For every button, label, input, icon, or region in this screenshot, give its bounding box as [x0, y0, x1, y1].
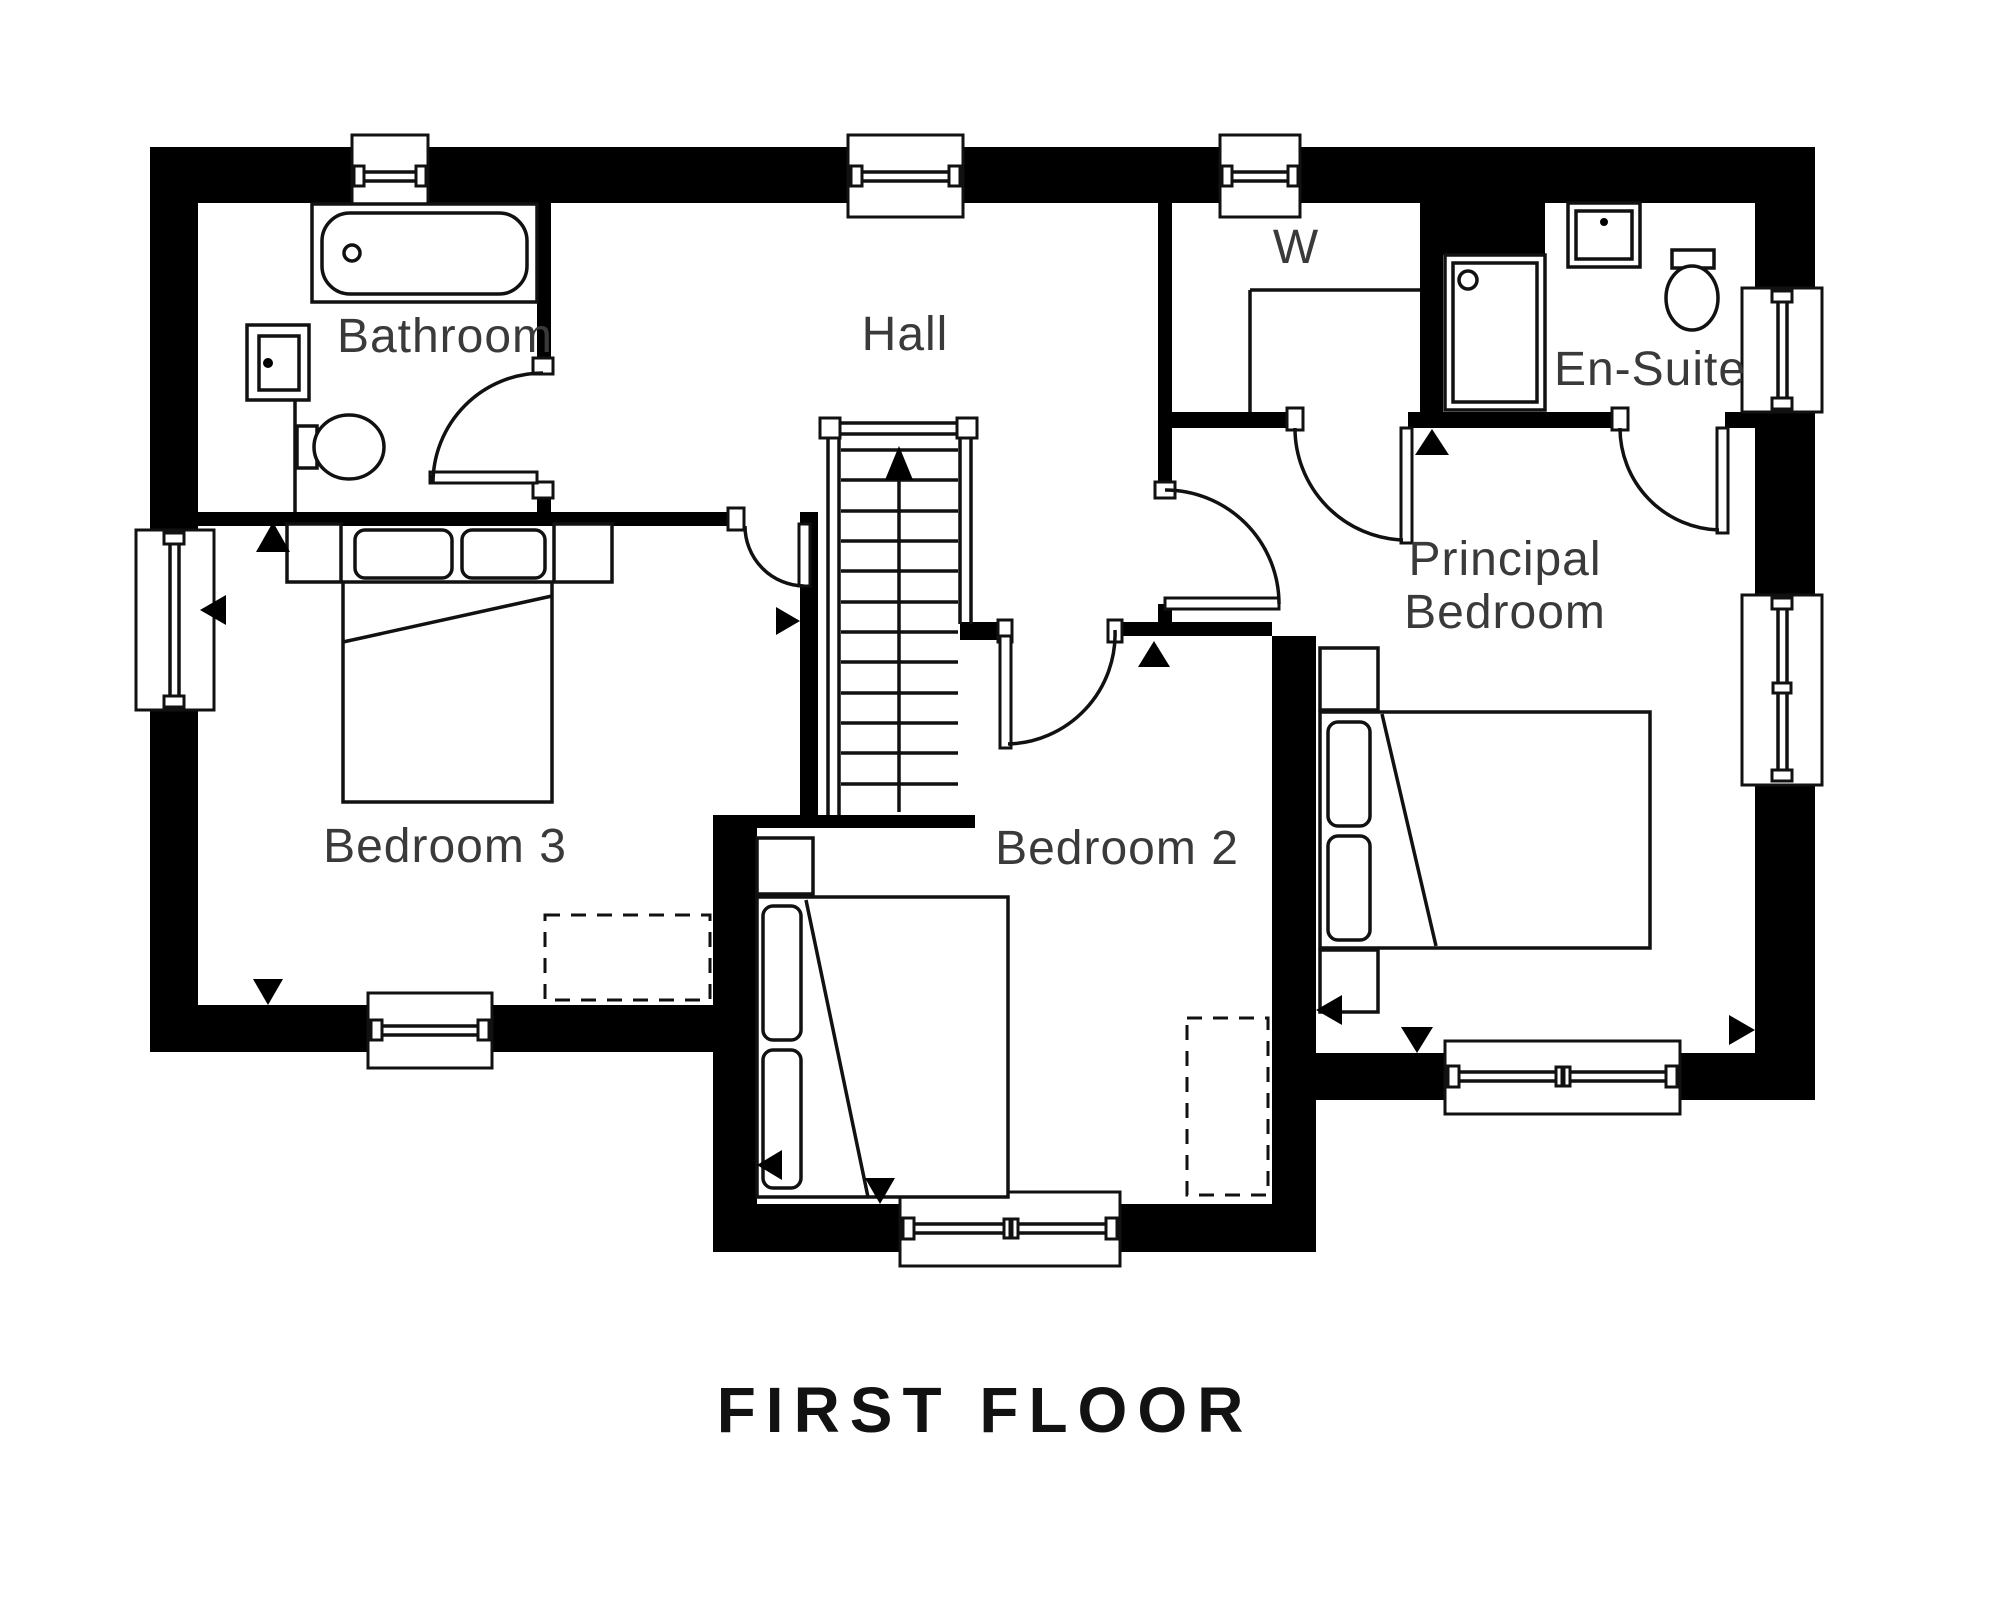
bedroom3-door — [728, 508, 810, 586]
bedroom2-furniture — [757, 838, 1268, 1197]
page-title: FIRST FLOOR — [717, 1374, 1254, 1446]
door-swing-arc — [433, 373, 543, 483]
bedroom2-door — [998, 620, 1122, 748]
principal-furniture — [1320, 648, 1650, 1012]
pillow — [763, 906, 801, 1040]
label-hall: Hall — [862, 308, 949, 361]
pillow — [462, 530, 545, 578]
wall-bathroom-bottom — [198, 512, 742, 526]
window-wardrobe-top — [1220, 135, 1300, 217]
label-bathroom: Bathroom — [337, 310, 553, 363]
floor-plan-svg: Bathroom Hall W En-Suite Principal Bedro… — [0, 0, 2000, 1600]
door-swing-arc — [1008, 630, 1115, 744]
door-leaf — [1717, 428, 1728, 533]
wall-wardrobe-principal — [1172, 412, 1295, 428]
chimney-block — [1420, 203, 1545, 255]
principal-door — [1155, 482, 1279, 609]
stair-newel-right — [957, 418, 977, 438]
bedside-table — [1320, 648, 1378, 710]
basin-tap-dot — [263, 358, 273, 368]
bathroom-door — [430, 358, 553, 498]
shower-tray-icon — [1445, 255, 1545, 410]
window-principal-bottom — [1445, 1041, 1680, 1114]
bath-tap-icon — [344, 245, 360, 261]
wall-ensuite-principal-left — [1408, 412, 1620, 428]
wardrobe-closet-outline — [1250, 290, 1420, 412]
wall-protrusion-left — [713, 815, 757, 1252]
marker-up — [1138, 641, 1170, 667]
ensuite-door — [1612, 408, 1728, 533]
wall-bedroom2-principal — [1272, 636, 1316, 1252]
stairs — [820, 418, 977, 815]
pillow — [1328, 836, 1370, 940]
stair-newel-left — [820, 418, 840, 438]
pillow — [355, 530, 452, 578]
wall-wardrobe-shower — [1420, 255, 1443, 412]
bedroom3-furniture — [287, 524, 710, 1000]
double-bed-icon — [343, 582, 552, 802]
marker-down — [253, 979, 283, 1005]
future-wardrobe-dashed — [545, 915, 710, 1000]
window-bedroom2-bottom — [900, 1192, 1120, 1266]
window-bedroom3-left — [136, 530, 214, 710]
marker-right — [776, 607, 800, 635]
door-swing-arc — [1620, 428, 1719, 530]
pillow — [1328, 722, 1370, 826]
marker-down — [1401, 1027, 1433, 1053]
window-bedroom3-bottom — [368, 993, 492, 1068]
marker-up — [1415, 429, 1449, 455]
bathroom-toilet-icon — [297, 415, 384, 479]
door-leaf — [1000, 636, 1011, 748]
ensuite-toilet-icon — [1666, 250, 1718, 330]
door-swing-arc — [745, 526, 804, 586]
bedside-table — [757, 838, 813, 894]
bedside-table — [287, 524, 341, 582]
wall-hall-wardrobe — [1158, 203, 1172, 490]
door-leaf — [1401, 428, 1412, 543]
future-wardrobe-dashed — [1187, 1018, 1268, 1195]
door-leaf — [1165, 598, 1279, 609]
wall-bedroom2-top-right — [1115, 622, 1272, 636]
door-leaf — [799, 524, 810, 586]
label-wardrobe: W — [1273, 221, 1319, 274]
door-leaf — [430, 472, 537, 483]
window-principal-right — [1742, 595, 1822, 785]
door-swing-arc — [1295, 428, 1403, 540]
wall-ensuite-principal-right — [1725, 412, 1755, 428]
label-bedroom3: Bedroom 3 — [323, 820, 567, 873]
label-bedroom2: Bedroom 2 — [995, 822, 1239, 875]
window-hall-top — [848, 135, 963, 217]
door-swing-arc — [1165, 490, 1279, 604]
window-ensuite-right — [1742, 288, 1822, 412]
label-ensuite: En-Suite — [1554, 343, 1746, 396]
bedside-table — [554, 524, 612, 582]
marker-up — [256, 522, 290, 552]
wardrobe-door — [1287, 408, 1412, 543]
label-principal-line1: Principal — [1408, 533, 1601, 586]
marker-right — [1729, 1015, 1755, 1045]
label-principal-line2: Bedroom — [1404, 586, 1606, 639]
floor-plan-page: Bathroom Hall W En-Suite Principal Bedro… — [0, 0, 2000, 1600]
wall-stairs-bottom — [757, 815, 975, 828]
ensuite-basin-icon — [1568, 203, 1640, 267]
